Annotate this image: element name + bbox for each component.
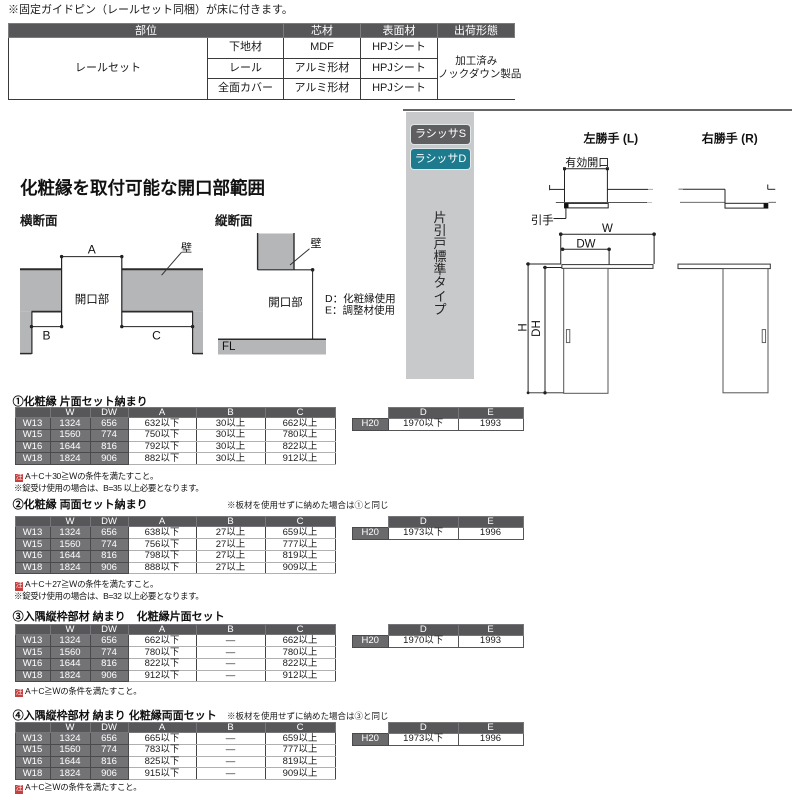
svg-text:有効開口: 有効開口 bbox=[565, 155, 609, 169]
svg-text:D：化粧縁使用: D：化粧縁使用 bbox=[325, 292, 396, 305]
svg-text:右勝手 (R): 右勝手 (R) bbox=[701, 131, 758, 146]
svg-text:DH: DH bbox=[531, 320, 543, 337]
svg-text:開口部: 開口部 bbox=[75, 292, 110, 306]
svg-text:引手: 引手 bbox=[531, 213, 554, 227]
svg-text:DW: DW bbox=[576, 239, 595, 251]
svg-text:壁: 壁 bbox=[181, 241, 192, 255]
svg-text:壁: 壁 bbox=[311, 236, 322, 250]
svg-text:B: B bbox=[42, 329, 50, 343]
svg-text:C: C bbox=[152, 329, 161, 343]
svg-text:A: A bbox=[88, 242, 96, 256]
svg-text:開口部: 開口部 bbox=[268, 295, 303, 309]
svg-text:H: H bbox=[518, 323, 530, 331]
svg-text:左勝手 (L): 左勝手 (L) bbox=[583, 131, 639, 146]
svg-text:W: W bbox=[602, 223, 613, 235]
svg-text:FL: FL bbox=[222, 341, 236, 353]
svg-text:E：調整材使用: E：調整材使用 bbox=[325, 304, 395, 317]
